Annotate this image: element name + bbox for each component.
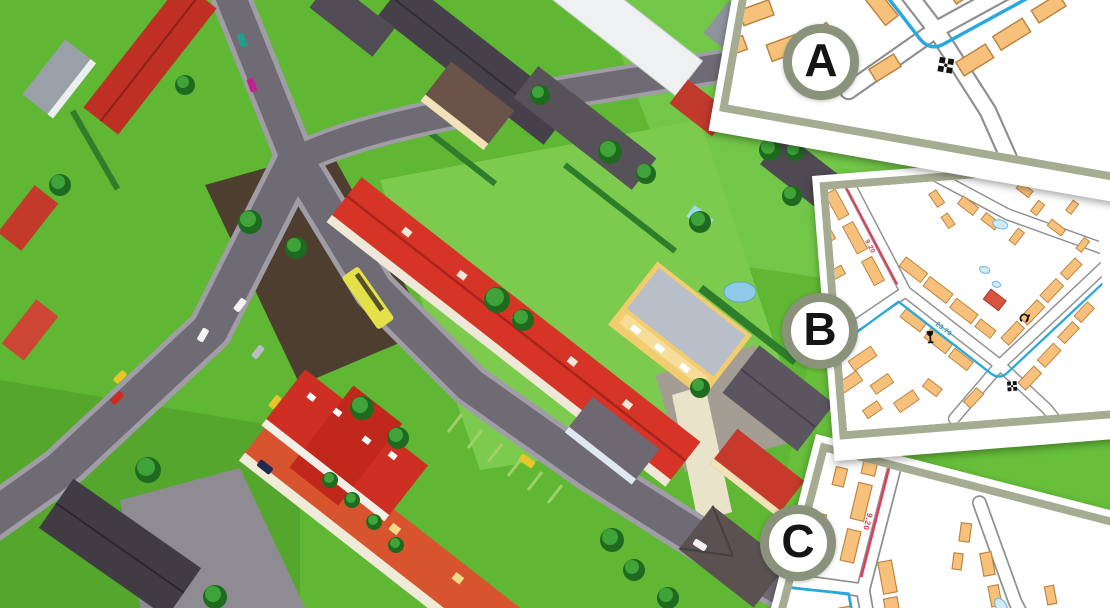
option-a-badge[interactable]: A (783, 24, 859, 100)
option-b-badge[interactable]: B (782, 293, 858, 369)
map-option-b-card[interactable] (812, 152, 1110, 461)
option-c-letter: C (781, 514, 814, 568)
matching-exercise: 23.70 9.20 (0, 0, 1110, 608)
option-b-letter: B (803, 302, 836, 356)
map-option-b (828, 169, 1110, 431)
option-a-letter: A (804, 33, 837, 87)
option-c-badge[interactable]: C (760, 505, 836, 581)
map-option-b-frame (820, 159, 1110, 439)
